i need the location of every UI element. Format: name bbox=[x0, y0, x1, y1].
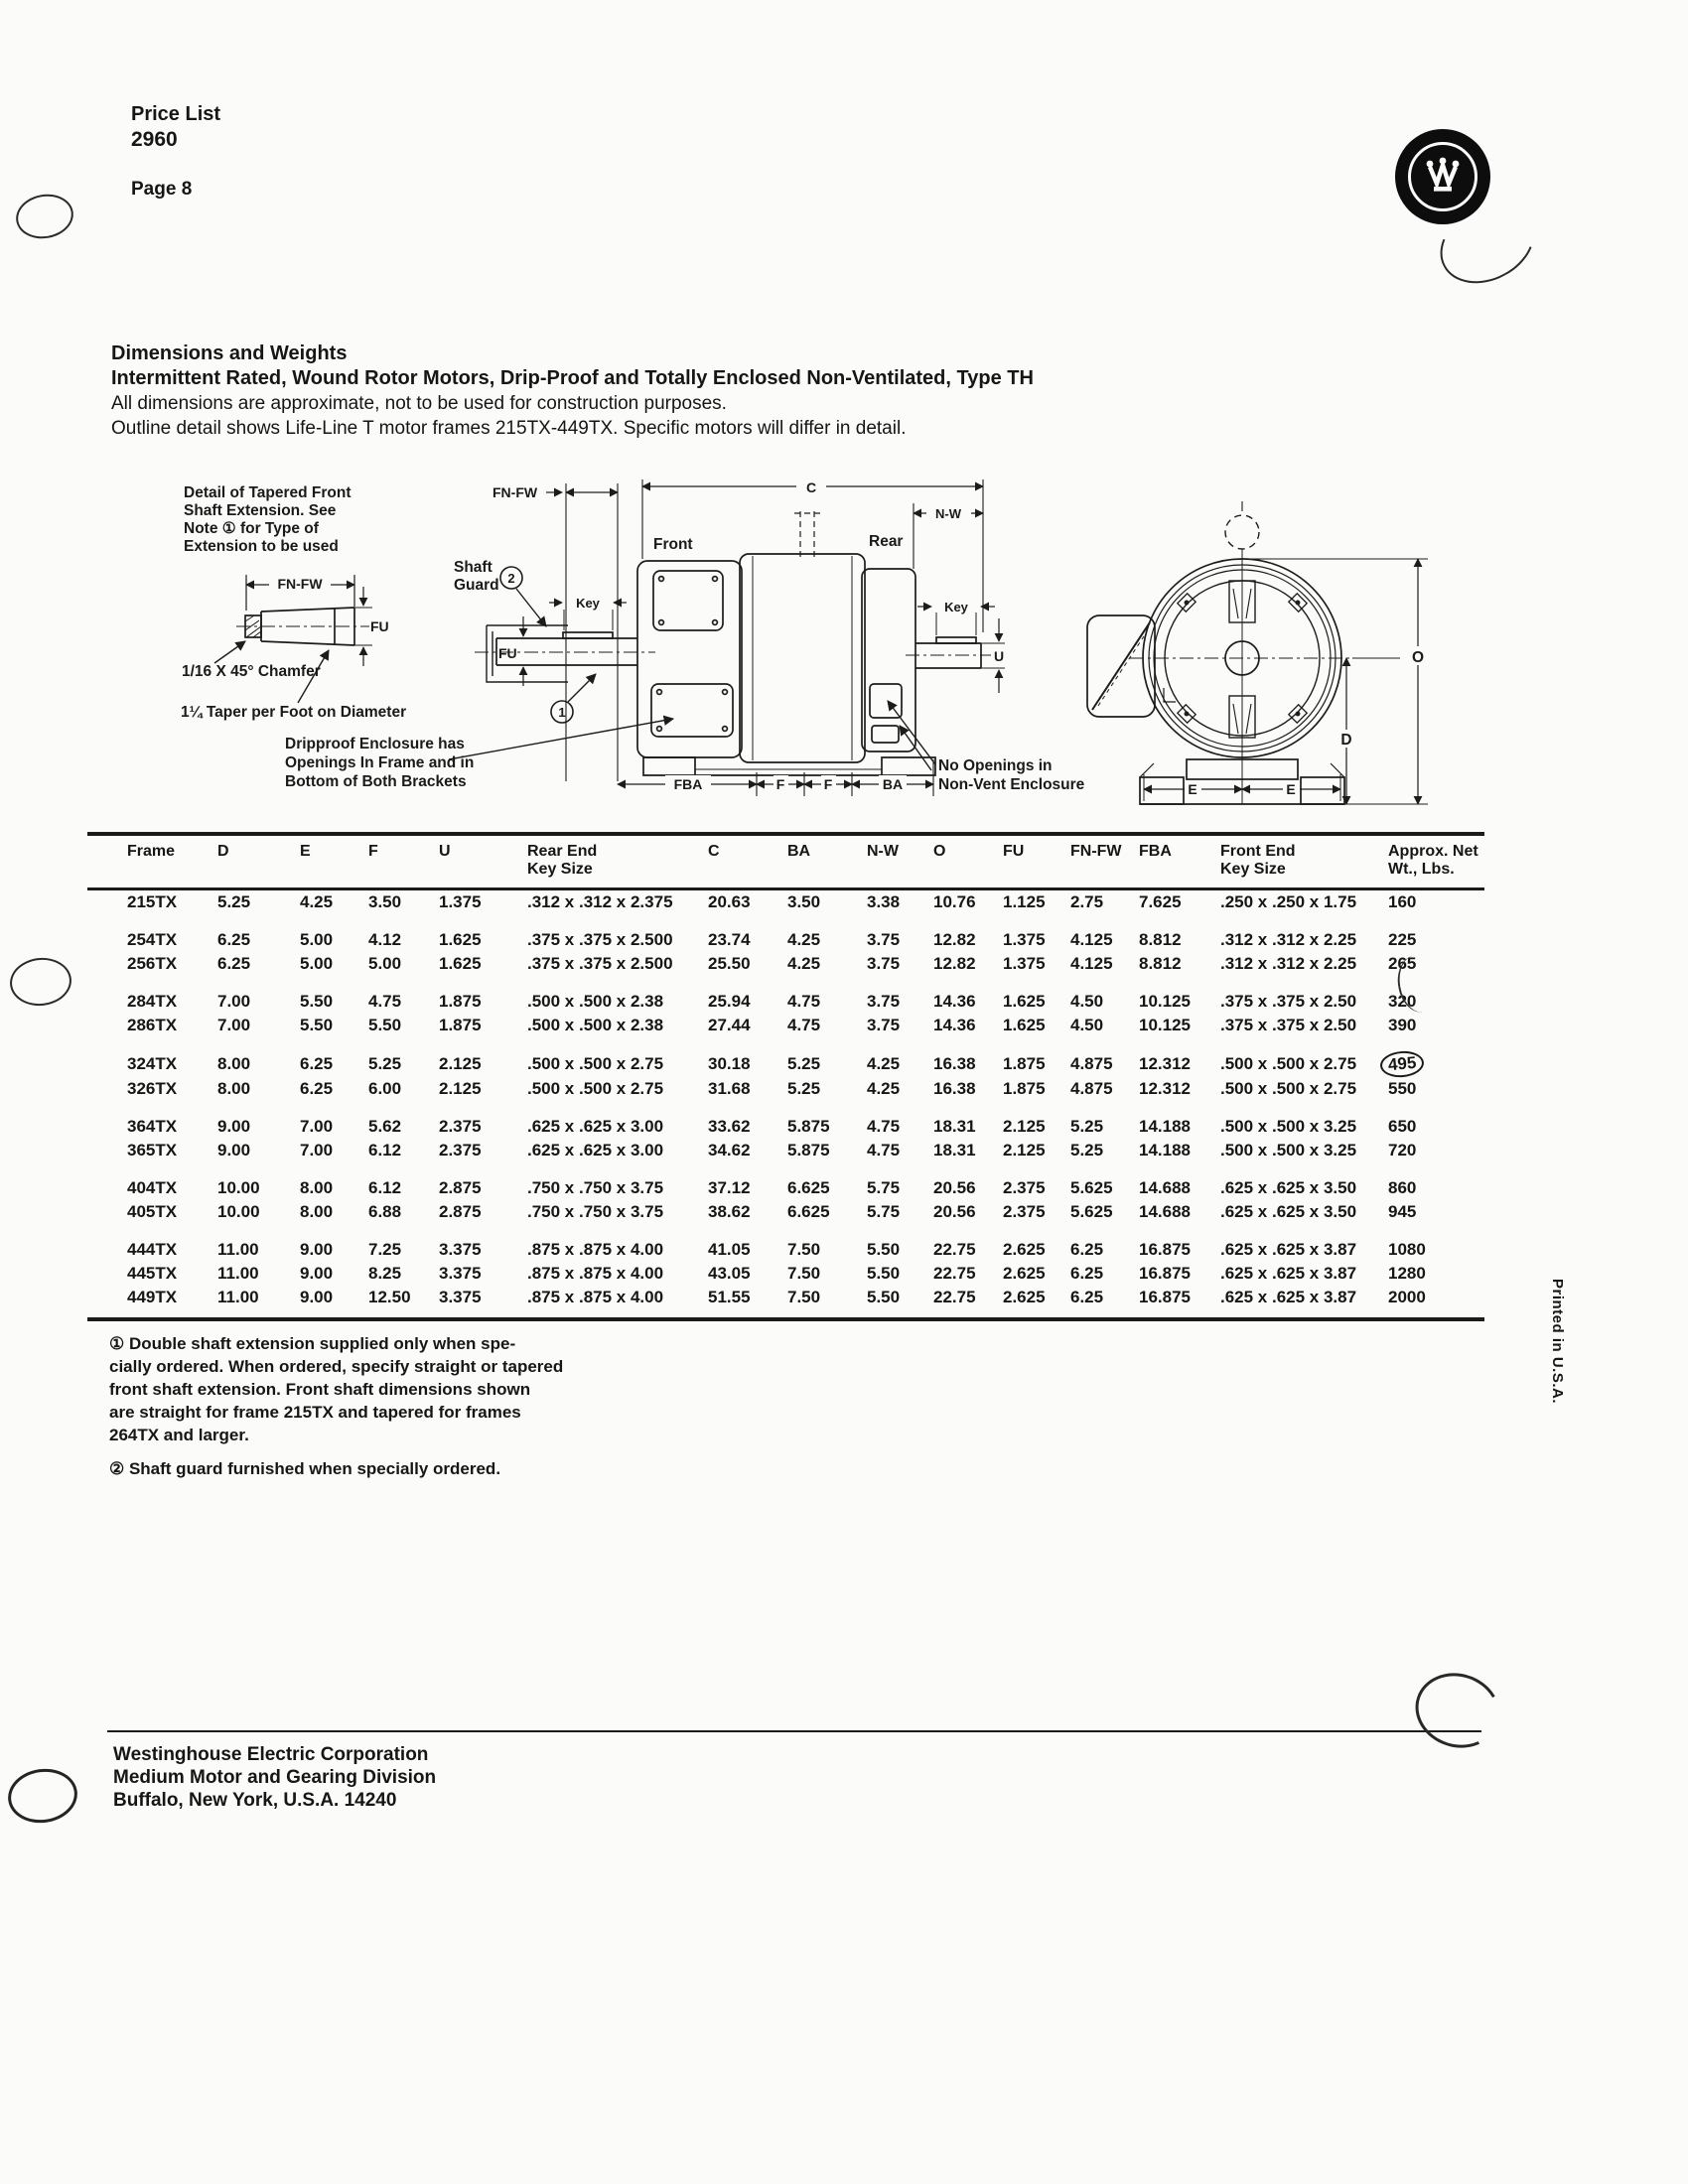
value-cell: 4.75 bbox=[787, 1014, 867, 1037]
scan-artifact-ring bbox=[1406, 1663, 1510, 1759]
value-cell: 2.125 bbox=[1003, 1101, 1070, 1139]
fn-fw-detail-dim: FN-FW bbox=[277, 576, 323, 592]
table-row: 254TX6.255.004.121.625.375 x .375 x 2.50… bbox=[87, 914, 1484, 952]
key-rear-label: Key bbox=[944, 600, 969, 614]
value-cell: 6.25 bbox=[217, 914, 300, 952]
n-w-dim: N-W bbox=[935, 506, 962, 521]
frame-cell: 405TX bbox=[87, 1200, 217, 1224]
shaft-guard-label: Shaft bbox=[454, 559, 492, 576]
value-cell: 2.625 bbox=[1003, 1224, 1070, 1262]
value-cell: 2000 bbox=[1388, 1286, 1484, 1319]
value-cell: 9.00 bbox=[300, 1286, 368, 1319]
value-cell: 4.25 bbox=[300, 889, 368, 915]
value-cell: 12.82 bbox=[933, 952, 1003, 976]
value-cell: 5.00 bbox=[300, 952, 368, 976]
value-cell: 38.62 bbox=[708, 1200, 787, 1224]
value-cell: 1.625 bbox=[439, 914, 527, 952]
value-cell: 43.05 bbox=[708, 1262, 787, 1286]
value-cell: .500 x .500 x 2.75 bbox=[1220, 1037, 1388, 1077]
value-cell: 3.75 bbox=[867, 952, 933, 976]
value-cell: 3.75 bbox=[867, 1014, 933, 1037]
value-cell: 5.75 bbox=[867, 1162, 933, 1200]
value-cell: 12.50 bbox=[368, 1286, 439, 1319]
value-cell: 1.625 bbox=[1003, 1014, 1070, 1037]
value-cell: 5.25 bbox=[217, 889, 300, 915]
outline-note-line: Outline detail shows Life-Line T motor f… bbox=[111, 416, 1034, 441]
dimensions-table-grid: FrameDEFURear EndKey SizeCBAN-WOFUFN-FWF… bbox=[87, 832, 1484, 1321]
value-cell: .750 x .750 x 3.75 bbox=[527, 1200, 708, 1224]
value-cell: 11.00 bbox=[217, 1262, 300, 1286]
value-cell: 7.00 bbox=[300, 1139, 368, 1162]
value-cell: 4.25 bbox=[787, 952, 867, 976]
value-cell: 20.56 bbox=[933, 1162, 1003, 1200]
value-cell: 720 bbox=[1388, 1139, 1484, 1162]
value-cell: 10.125 bbox=[1139, 976, 1220, 1014]
table-row: 365TX9.007.006.122.375.625 x .625 x 3.00… bbox=[87, 1139, 1484, 1162]
scan-artifact-ellipse bbox=[8, 955, 74, 1009]
dimensions-table: FrameDEFURear EndKey SizeCBAN-WOFUFN-FWF… bbox=[87, 832, 1484, 1321]
frame-cell: 215TX bbox=[87, 889, 217, 915]
value-cell: 16.875 bbox=[1139, 1262, 1220, 1286]
fu-mid-dim: FU bbox=[498, 645, 517, 661]
fn-fw-mid-dim: FN-FW bbox=[492, 484, 538, 500]
value-cell: 16.875 bbox=[1139, 1224, 1220, 1262]
value-cell: 6.25 bbox=[1070, 1286, 1139, 1319]
dripproof-note-line: Bottom of Both Brackets bbox=[285, 773, 467, 790]
value-cell: 30.18 bbox=[708, 1037, 787, 1077]
table-row: 444TX11.009.007.253.375.875 x .875 x 4.0… bbox=[87, 1224, 1484, 1262]
value-cell: 9.00 bbox=[300, 1262, 368, 1286]
table-row: 404TX10.008.006.122.875.750 x .750 x 3.7… bbox=[87, 1162, 1484, 1200]
column-header: FBA bbox=[1139, 834, 1220, 889]
shaft-guard-label: Guard bbox=[454, 577, 499, 594]
value-cell: 4.75 bbox=[787, 976, 867, 1014]
column-header: E bbox=[300, 834, 368, 889]
fu-detail-dim: FU bbox=[370, 618, 389, 634]
f-dim: F bbox=[824, 776, 833, 792]
value-cell: 4.12 bbox=[368, 914, 439, 952]
value-cell: 5.00 bbox=[300, 914, 368, 952]
value-cell: 8.00 bbox=[300, 1162, 368, 1200]
value-cell: 160 bbox=[1388, 889, 1484, 915]
motor-end-view: O D E E bbox=[1087, 501, 1428, 804]
value-cell: 5.25 bbox=[1070, 1139, 1139, 1162]
chamfer-label: 1/16 X 45° Chamfer bbox=[182, 663, 321, 680]
e-dim: E bbox=[1188, 781, 1196, 797]
value-cell: 2.375 bbox=[439, 1101, 527, 1139]
d-dim: D bbox=[1340, 732, 1351, 749]
footer-division: Medium Motor and Gearing Division bbox=[113, 1766, 436, 1789]
value-cell: 650 bbox=[1388, 1101, 1484, 1139]
value-cell: 4.25 bbox=[867, 1077, 933, 1101]
detail-note-line: Shaft Extension. See bbox=[184, 502, 337, 519]
value-cell: 14.188 bbox=[1139, 1139, 1220, 1162]
value-cell: .500 x .500 x 2.75 bbox=[1220, 1077, 1388, 1101]
value-cell: .625 x .625 x 3.00 bbox=[527, 1139, 708, 1162]
footer-address: Westinghouse Electric Corporation Medium… bbox=[113, 1743, 436, 1812]
value-cell: 495 bbox=[1388, 1037, 1484, 1077]
value-cell: 14.188 bbox=[1139, 1101, 1220, 1139]
value-cell: 1280 bbox=[1388, 1262, 1484, 1286]
value-cell: 18.31 bbox=[933, 1101, 1003, 1139]
column-header: FN-FW bbox=[1070, 834, 1139, 889]
value-cell: 51.55 bbox=[708, 1286, 787, 1319]
value-cell: .375 x .375 x 2.500 bbox=[527, 914, 708, 952]
value-cell: 5.625 bbox=[1070, 1200, 1139, 1224]
value-cell: 10.76 bbox=[933, 889, 1003, 915]
value-cell: 4.875 bbox=[1070, 1037, 1139, 1077]
note2-circle: 2 bbox=[507, 571, 514, 586]
value-cell: 23.74 bbox=[708, 914, 787, 952]
value-cell: 10.125 bbox=[1139, 1014, 1220, 1037]
value-cell: 16.38 bbox=[933, 1037, 1003, 1077]
value-cell: 4.75 bbox=[368, 976, 439, 1014]
value-cell: 11.00 bbox=[217, 1224, 300, 1262]
value-cell: 5.50 bbox=[867, 1262, 933, 1286]
value-cell: 2.375 bbox=[439, 1139, 527, 1162]
disclaimer-line: All dimensions are approximate, not to b… bbox=[111, 391, 1034, 416]
value-cell: 8.25 bbox=[368, 1262, 439, 1286]
value-cell: 6.12 bbox=[368, 1139, 439, 1162]
footer-location: Buffalo, New York, U.S.A. 14240 bbox=[113, 1789, 436, 1812]
value-cell: 33.62 bbox=[708, 1101, 787, 1139]
value-cell: 25.50 bbox=[708, 952, 787, 976]
value-cell: 7.625 bbox=[1139, 889, 1220, 915]
value-cell: 7.50 bbox=[787, 1286, 867, 1319]
page-number: Page 8 bbox=[131, 179, 192, 201]
value-cell: 390 bbox=[1388, 1014, 1484, 1037]
value-cell: 1.375 bbox=[439, 889, 527, 915]
value-cell: 7.00 bbox=[217, 976, 300, 1014]
value-cell: 34.62 bbox=[708, 1139, 787, 1162]
value-cell: 2.875 bbox=[439, 1200, 527, 1224]
value-cell: 9.00 bbox=[217, 1139, 300, 1162]
value-cell: 8.00 bbox=[217, 1077, 300, 1101]
frame-cell: 284TX bbox=[87, 976, 217, 1014]
value-cell: 6.12 bbox=[368, 1162, 439, 1200]
westinghouse-w-icon bbox=[1423, 155, 1463, 197]
printed-in-usa-label: Printed in U.S.A. bbox=[1549, 1279, 1566, 1404]
table-row: 445TX11.009.008.253.375.875 x .875 x 4.0… bbox=[87, 1262, 1484, 1286]
value-cell: 6.25 bbox=[1070, 1224, 1139, 1262]
value-cell: 2.625 bbox=[1003, 1286, 1070, 1319]
value-cell: 8.00 bbox=[300, 1200, 368, 1224]
value-cell: .625 x .625 x 3.87 bbox=[1220, 1262, 1388, 1286]
value-cell: 31.68 bbox=[708, 1077, 787, 1101]
column-header: FU bbox=[1003, 834, 1070, 889]
frame-cell: 404TX bbox=[87, 1162, 217, 1200]
no-openings-note-line: No Openings in bbox=[938, 757, 1053, 774]
value-cell: 4.50 bbox=[1070, 1014, 1139, 1037]
value-cell: 14.688 bbox=[1139, 1200, 1220, 1224]
value-cell: 22.75 bbox=[933, 1286, 1003, 1319]
value-cell: 25.94 bbox=[708, 976, 787, 1014]
value-cell: .875 x .875 x 4.00 bbox=[527, 1262, 708, 1286]
value-cell: 3.75 bbox=[867, 914, 933, 952]
column-header: U bbox=[439, 834, 527, 889]
value-cell: 7.00 bbox=[217, 1014, 300, 1037]
page-title: Dimensions and Weights bbox=[111, 341, 1034, 366]
value-cell: 2.125 bbox=[439, 1037, 527, 1077]
value-cell: 4.125 bbox=[1070, 914, 1139, 952]
value-cell: 1.625 bbox=[1003, 976, 1070, 1014]
c-dim: C bbox=[806, 479, 816, 495]
column-header: Rear EndKey Size bbox=[527, 834, 708, 889]
value-cell: .875 x .875 x 4.00 bbox=[527, 1224, 708, 1262]
value-cell: 6.625 bbox=[787, 1200, 867, 1224]
value-cell: 22.75 bbox=[933, 1262, 1003, 1286]
value-cell: 6.25 bbox=[300, 1077, 368, 1101]
value-cell: 5.50 bbox=[368, 1014, 439, 1037]
value-cell: 3.375 bbox=[439, 1286, 527, 1319]
value-cell: 4.75 bbox=[867, 1101, 933, 1139]
taper-label: 1¼ Taper per Foot on Diameter bbox=[181, 704, 406, 721]
value-cell: .625 x .625 x 3.50 bbox=[1220, 1162, 1388, 1200]
value-cell: 5.875 bbox=[787, 1101, 867, 1139]
value-cell: 3.38 bbox=[867, 889, 933, 915]
value-cell: 14.36 bbox=[933, 1014, 1003, 1037]
o-dim: O bbox=[1412, 649, 1424, 666]
value-cell: 1.875 bbox=[439, 976, 527, 1014]
value-cell: 3.50 bbox=[368, 889, 439, 915]
value-cell: 1.125 bbox=[1003, 889, 1070, 915]
value-cell: 11.00 bbox=[217, 1286, 300, 1319]
frame-cell: 254TX bbox=[87, 914, 217, 952]
value-cell: 7.25 bbox=[368, 1224, 439, 1262]
page-subtitle: Intermittent Rated, Wound Rotor Motors, … bbox=[111, 366, 1034, 391]
value-cell: 945 bbox=[1388, 1200, 1484, 1224]
column-header: BA bbox=[787, 834, 867, 889]
document-header: Price List 2960 bbox=[131, 102, 220, 152]
table-row: 405TX10.008.006.882.875.750 x .750 x 3.7… bbox=[87, 1200, 1484, 1224]
value-cell: 1.375 bbox=[1003, 952, 1070, 976]
value-cell: 4.50 bbox=[1070, 976, 1139, 1014]
value-cell: 8.812 bbox=[1139, 914, 1220, 952]
value-cell: .625 x .625 x 3.00 bbox=[527, 1101, 708, 1139]
value-cell: 3.375 bbox=[439, 1224, 527, 1262]
value-cell: .250 x .250 x 1.75 bbox=[1220, 889, 1388, 915]
value-cell: 12.82 bbox=[933, 914, 1003, 952]
value-cell: 2.875 bbox=[439, 1162, 527, 1200]
value-cell: 5.75 bbox=[867, 1200, 933, 1224]
frame-cell: 324TX bbox=[87, 1037, 217, 1077]
frame-cell: 445TX bbox=[87, 1262, 217, 1286]
frame-cell: 444TX bbox=[87, 1224, 217, 1262]
footer-company: Westinghouse Electric Corporation bbox=[113, 1743, 436, 1766]
value-cell: 14.688 bbox=[1139, 1162, 1220, 1200]
front-label: Front bbox=[653, 536, 693, 553]
price-list-label: Price List bbox=[131, 102, 220, 127]
footnote-2: ② Shaft guard furnished when specially o… bbox=[109, 1459, 500, 1479]
f-dim: F bbox=[776, 776, 785, 792]
value-cell: 6.25 bbox=[217, 952, 300, 976]
value-cell: 4.875 bbox=[1070, 1077, 1139, 1101]
value-cell: .500 x .500 x 2.38 bbox=[527, 976, 708, 1014]
value-cell: .500 x .500 x 2.38 bbox=[527, 1014, 708, 1037]
column-header: C bbox=[708, 834, 787, 889]
value-cell: 2.625 bbox=[1003, 1262, 1070, 1286]
value-cell: 12.312 bbox=[1139, 1037, 1220, 1077]
value-cell: .750 x .750 x 3.75 bbox=[527, 1162, 708, 1200]
value-cell: 6.25 bbox=[1070, 1262, 1139, 1286]
column-header: O bbox=[933, 834, 1003, 889]
table-row: 326TX8.006.256.002.125.500 x .500 x 2.75… bbox=[87, 1077, 1484, 1101]
scan-artifact-ellipse bbox=[13, 190, 77, 242]
value-cell: 10.00 bbox=[217, 1162, 300, 1200]
frame-cell: 365TX bbox=[87, 1139, 217, 1162]
value-cell: 8.00 bbox=[217, 1037, 300, 1077]
value-cell: .500 x .500 x 3.25 bbox=[1220, 1101, 1388, 1139]
ba-dim: BA bbox=[883, 776, 903, 792]
value-cell: 1.625 bbox=[439, 952, 527, 976]
value-cell: 1.875 bbox=[1003, 1077, 1070, 1101]
column-header: Front EndKey Size bbox=[1220, 834, 1388, 889]
value-cell: 860 bbox=[1388, 1162, 1484, 1200]
value-cell: 5.62 bbox=[368, 1101, 439, 1139]
value-cell: 6.25 bbox=[300, 1037, 368, 1077]
value-cell: 16.38 bbox=[933, 1077, 1003, 1101]
value-cell: 4.25 bbox=[867, 1037, 933, 1077]
value-cell: 6.00 bbox=[368, 1077, 439, 1101]
frame-cell: 364TX bbox=[87, 1101, 217, 1139]
value-cell: 12.312 bbox=[1139, 1077, 1220, 1101]
value-cell: 5.625 bbox=[1070, 1162, 1139, 1200]
frame-cell: 449TX bbox=[87, 1286, 217, 1319]
value-cell: 9.00 bbox=[217, 1101, 300, 1139]
note1-circle: 1 bbox=[558, 705, 565, 720]
value-cell: 225 bbox=[1388, 914, 1484, 952]
value-cell: 16.875 bbox=[1139, 1286, 1220, 1319]
detail-note-line: Detail of Tapered Front bbox=[184, 484, 352, 501]
column-header: F bbox=[368, 834, 439, 889]
value-cell: 5.00 bbox=[368, 952, 439, 976]
key-front-label: Key bbox=[576, 596, 601, 611]
table-row: 284TX7.005.504.751.875.500 x .500 x 2.38… bbox=[87, 976, 1484, 1014]
table-row: 324TX8.006.255.252.125.500 x .500 x 2.75… bbox=[87, 1037, 1484, 1077]
value-cell: 7.00 bbox=[300, 1101, 368, 1139]
value-cell: 3.75 bbox=[867, 976, 933, 1014]
table-row: 286TX7.005.505.501.875.500 x .500 x 2.38… bbox=[87, 1014, 1484, 1037]
scan-artifact-ellipse bbox=[5, 1764, 81, 1827]
value-cell: 41.05 bbox=[708, 1224, 787, 1262]
column-header: N-W bbox=[867, 834, 933, 889]
dripproof-note-line: Dripproof Enclosure has bbox=[285, 736, 465, 752]
fba-dim: FBA bbox=[674, 776, 703, 792]
value-cell: 2.125 bbox=[1003, 1139, 1070, 1162]
value-cell: .500 x .500 x 3.25 bbox=[1220, 1139, 1388, 1162]
value-cell: 4.75 bbox=[867, 1139, 933, 1162]
value-cell: .625 x .625 x 3.87 bbox=[1220, 1224, 1388, 1262]
value-cell: 5.50 bbox=[300, 976, 368, 1014]
value-cell: .375 x .375 x 2.50 bbox=[1220, 976, 1388, 1014]
value-cell: 37.12 bbox=[708, 1162, 787, 1200]
value-cell: 6.625 bbox=[787, 1162, 867, 1200]
value-cell: .500 x .500 x 2.75 bbox=[527, 1077, 708, 1101]
value-cell: 22.75 bbox=[933, 1224, 1003, 1262]
table-row: 364TX9.007.005.622.375.625 x .625 x 3.00… bbox=[87, 1101, 1484, 1139]
e-dim: E bbox=[1286, 781, 1295, 797]
frame-cell: 256TX bbox=[87, 952, 217, 976]
column-header: Approx. NetWt., Lbs. bbox=[1388, 834, 1484, 889]
value-cell: .312 x .312 x 2.25 bbox=[1220, 952, 1388, 976]
value-cell: 2.375 bbox=[1003, 1162, 1070, 1200]
frame-cell: 286TX bbox=[87, 1014, 217, 1037]
value-cell: 7.50 bbox=[787, 1262, 867, 1286]
price-list-number: 2960 bbox=[131, 127, 220, 152]
value-cell: 1.875 bbox=[439, 1014, 527, 1037]
value-cell: 20.63 bbox=[708, 889, 787, 915]
value-cell: 4.25 bbox=[787, 914, 867, 952]
value-cell: .375 x .375 x 2.50 bbox=[1220, 1014, 1388, 1037]
value-cell: 2.375 bbox=[1003, 1200, 1070, 1224]
value-cell: 8.812 bbox=[1139, 952, 1220, 976]
detail-note-line: Note ① for Type of bbox=[184, 520, 320, 537]
value-cell: 1.875 bbox=[1003, 1037, 1070, 1077]
detail-note-line: Extension to be used bbox=[184, 538, 339, 555]
value-cell: 4.125 bbox=[1070, 952, 1139, 976]
value-cell: .875 x .875 x 4.00 bbox=[527, 1286, 708, 1319]
column-header: Frame bbox=[87, 834, 217, 889]
table-row: 256TX6.255.005.001.625.375 x .375 x 2.50… bbox=[87, 952, 1484, 976]
value-cell: 20.56 bbox=[933, 1200, 1003, 1224]
value-cell: 550 bbox=[1388, 1077, 1484, 1101]
value-cell: 5.25 bbox=[787, 1077, 867, 1101]
value-cell: 2.125 bbox=[439, 1077, 527, 1101]
value-cell: 6.88 bbox=[368, 1200, 439, 1224]
value-cell: 5.25 bbox=[1070, 1101, 1139, 1139]
no-openings-note-line: Non-Vent Enclosure bbox=[938, 776, 1085, 793]
value-cell: 14.36 bbox=[933, 976, 1003, 1014]
value-cell: .375 x .375 x 2.500 bbox=[527, 952, 708, 976]
value-cell: 18.31 bbox=[933, 1139, 1003, 1162]
value-cell: .312 x .312 x 2.25 bbox=[1220, 914, 1388, 952]
value-cell: 27.44 bbox=[708, 1014, 787, 1037]
table-header-row: FrameDEFURear EndKey SizeCBAN-WOFUFN-FWF… bbox=[87, 834, 1484, 889]
value-cell: 5.25 bbox=[787, 1037, 867, 1077]
value-cell: 5.50 bbox=[867, 1224, 933, 1262]
motor-side-view: FN-FW C N-W bbox=[285, 477, 1085, 796]
value-cell: .500 x .500 x 2.75 bbox=[527, 1037, 708, 1077]
title-block: Dimensions and Weights Intermittent Rate… bbox=[111, 341, 1034, 441]
value-cell: 5.25 bbox=[368, 1037, 439, 1077]
u-dim: U bbox=[994, 648, 1004, 664]
dripproof-note-line: Openings In Frame and in bbox=[285, 754, 474, 771]
table-row: 449TX11.009.0012.503.375.875 x .875 x 4.… bbox=[87, 1286, 1484, 1319]
value-cell: 1.375 bbox=[1003, 914, 1070, 952]
value-cell: 9.00 bbox=[300, 1224, 368, 1262]
value-cell: 3.375 bbox=[439, 1262, 527, 1286]
footnote-1: ① Double shaft extension supplied only w… bbox=[109, 1332, 586, 1446]
value-cell: 7.50 bbox=[787, 1224, 867, 1262]
table-row: 215TX5.254.253.501.375.312 x .312 x 2.37… bbox=[87, 889, 1484, 915]
value-cell: .625 x .625 x 3.87 bbox=[1220, 1286, 1388, 1319]
value-cell: .625 x .625 x 3.50 bbox=[1220, 1200, 1388, 1224]
rear-label: Rear bbox=[869, 533, 903, 550]
value-cell: 5.50 bbox=[867, 1286, 933, 1319]
table-body: 215TX5.254.253.501.375.312 x .312 x 2.37… bbox=[87, 889, 1484, 1320]
value-cell: 2.75 bbox=[1070, 889, 1139, 915]
column-header: D bbox=[217, 834, 300, 889]
value-cell: 10.00 bbox=[217, 1200, 300, 1224]
value-cell: 1080 bbox=[1388, 1224, 1484, 1262]
motor-dimension-diagram: Detail of Tapered Front Shaft Extension.… bbox=[99, 462, 1470, 809]
footer-divider bbox=[107, 1730, 1481, 1732]
value-cell: 5.875 bbox=[787, 1139, 867, 1162]
shaft-detail-drawing: Detail of Tapered Front Shaft Extension.… bbox=[181, 484, 406, 721]
frame-cell: 326TX bbox=[87, 1077, 217, 1101]
value-cell: 5.50 bbox=[300, 1014, 368, 1037]
value-cell: .312 x .312 x 2.375 bbox=[527, 889, 708, 915]
